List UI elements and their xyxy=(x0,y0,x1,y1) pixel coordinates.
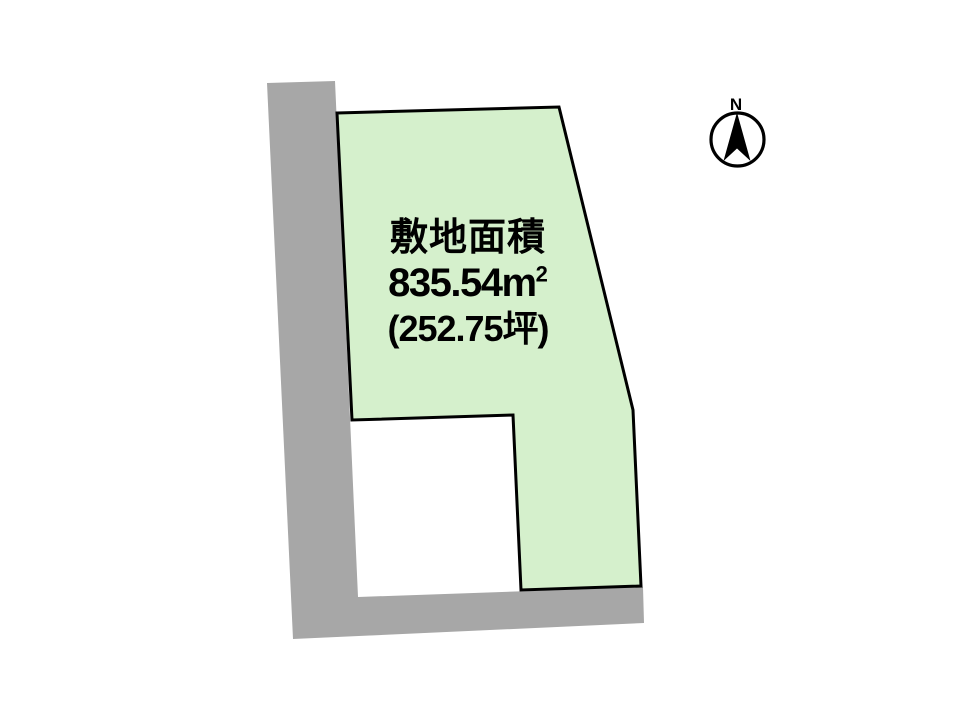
plot-area-sqm-unit: m xyxy=(502,261,536,305)
site-plan-canvas: N 敷地面積 835.54m2 (252.75坪) xyxy=(0,0,960,720)
site-plan-drawing: N xyxy=(0,0,960,720)
plot-area-title: 敷地面積 xyxy=(318,216,618,261)
plot-area-sqm: 835.54m2 xyxy=(318,261,618,306)
compass-north-label: N xyxy=(730,95,742,114)
compass-needle-icon xyxy=(724,113,751,162)
plot-area-sqm-value: 835.54 xyxy=(388,261,501,305)
plot-area-label: 敷地面積 835.54m2 (252.75坪) xyxy=(318,216,618,351)
plot-area-sqm-exponent: 2 xyxy=(536,262,548,287)
plot-area-tsubo: (252.75坪) xyxy=(318,306,618,351)
compass: N xyxy=(711,95,764,166)
